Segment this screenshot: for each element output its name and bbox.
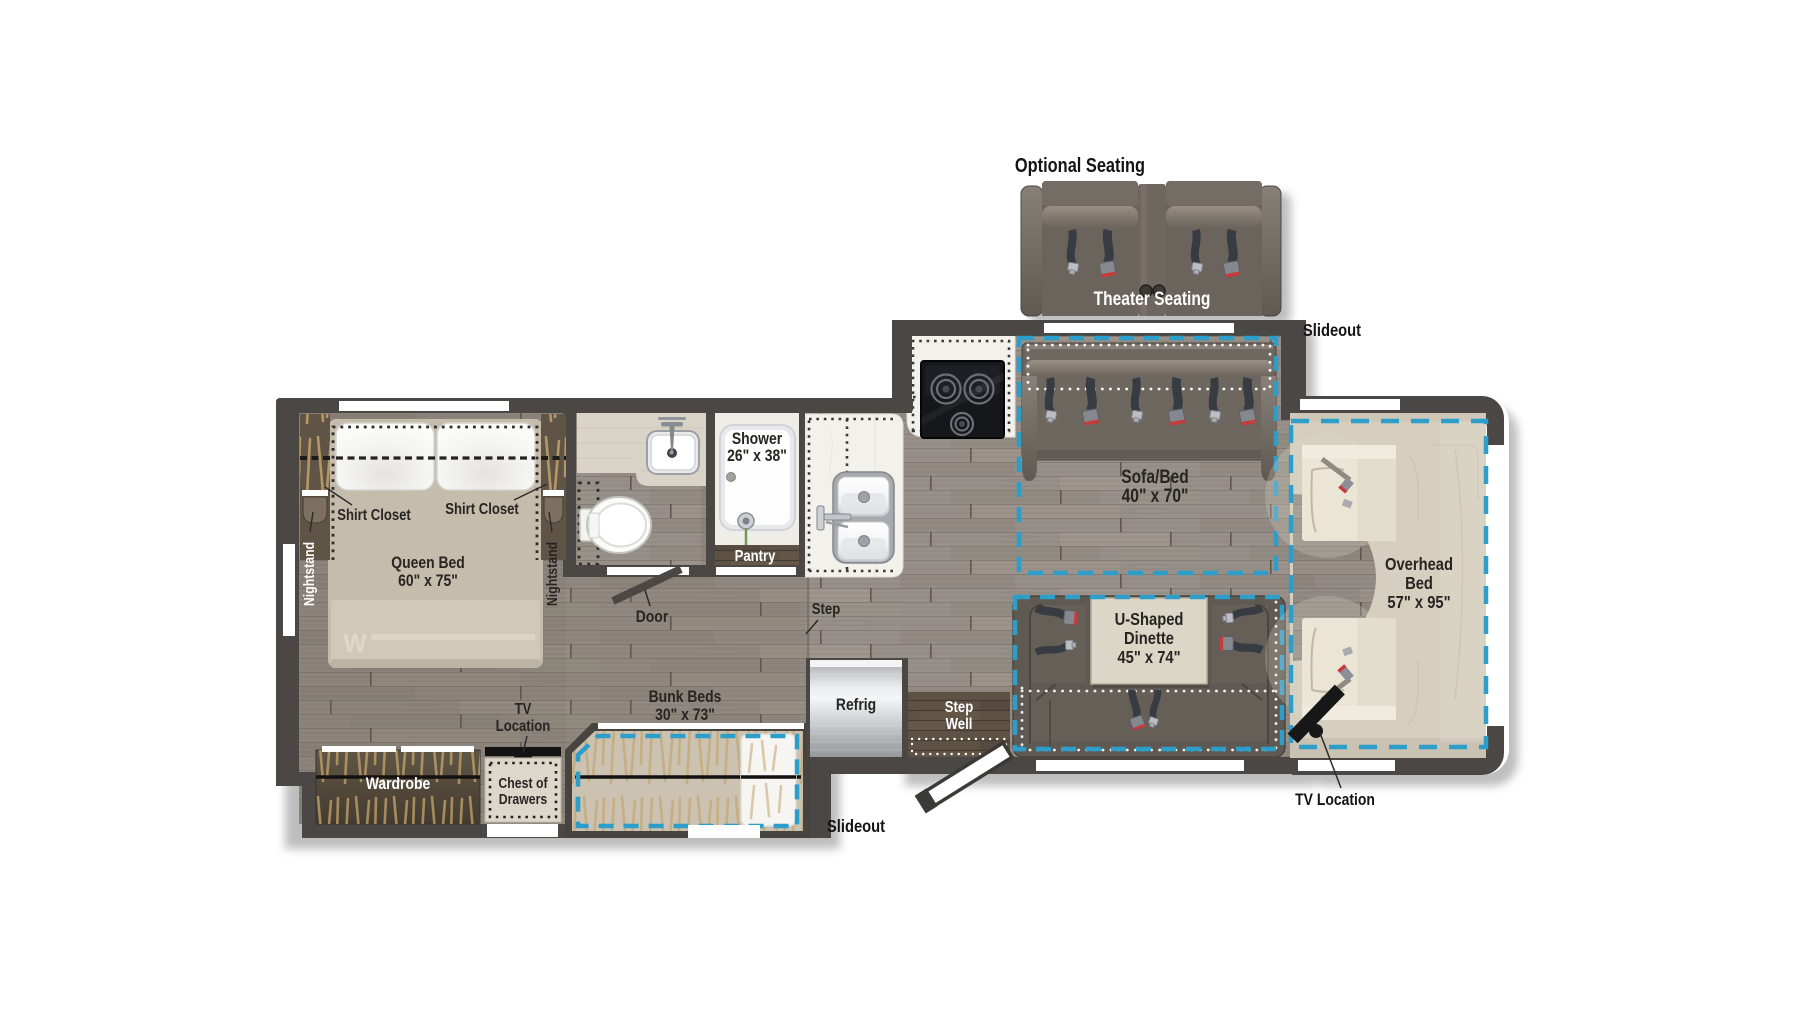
- svg-text:Shirt Closet: Shirt Closet: [337, 507, 411, 524]
- svg-text:Well: Well: [946, 716, 973, 733]
- svg-text:Queen Bed: Queen Bed: [391, 554, 465, 573]
- svg-text:Dinette: Dinette: [1124, 629, 1174, 649]
- svg-text:Step: Step: [945, 699, 973, 716]
- svg-text:57" x 95": 57" x 95": [1387, 593, 1450, 613]
- svg-text:Refrig: Refrig: [836, 696, 876, 715]
- svg-text:Slideout: Slideout: [1303, 321, 1362, 341]
- svg-text:26" x 38": 26" x 38": [727, 447, 787, 466]
- svg-text:Nightstand: Nightstand: [544, 542, 560, 606]
- svg-text:Optional Seating: Optional Seating: [1015, 153, 1145, 176]
- svg-text:W: W: [343, 629, 366, 658]
- svg-text:Shower: Shower: [732, 430, 782, 449]
- svg-text:U-Shaped: U-Shaped: [1115, 610, 1184, 630]
- svg-text:Step: Step: [812, 601, 840, 618]
- svg-text:Door: Door: [636, 608, 669, 627]
- svg-text:Chest of: Chest of: [498, 775, 548, 791]
- svg-text:60" x 75": 60" x 75": [398, 572, 458, 591]
- svg-text:Bed: Bed: [1405, 574, 1433, 594]
- svg-text:40" x 70": 40" x 70": [1122, 485, 1189, 507]
- svg-text:Pantry: Pantry: [735, 548, 777, 565]
- svg-text:45" x 74": 45" x 74": [1117, 648, 1180, 668]
- svg-text:Shirt Closet: Shirt Closet: [445, 501, 519, 518]
- svg-text:Drawers: Drawers: [499, 791, 548, 807]
- svg-text:Location: Location: [496, 718, 551, 735]
- svg-text:Overhead: Overhead: [1385, 555, 1453, 575]
- svg-text:Theater Seating: Theater Seating: [1094, 288, 1211, 310]
- svg-text:30" x 73": 30" x 73": [655, 706, 715, 725]
- svg-text:Wardrobe: Wardrobe: [366, 775, 431, 794]
- svg-text:TV Location: TV Location: [1295, 791, 1375, 810]
- svg-text:Nightstand: Nightstand: [301, 542, 317, 606]
- svg-text:Bunk Beds: Bunk Beds: [649, 688, 722, 707]
- svg-text:Slideout: Slideout: [827, 817, 886, 837]
- svg-text:TV: TV: [515, 701, 532, 718]
